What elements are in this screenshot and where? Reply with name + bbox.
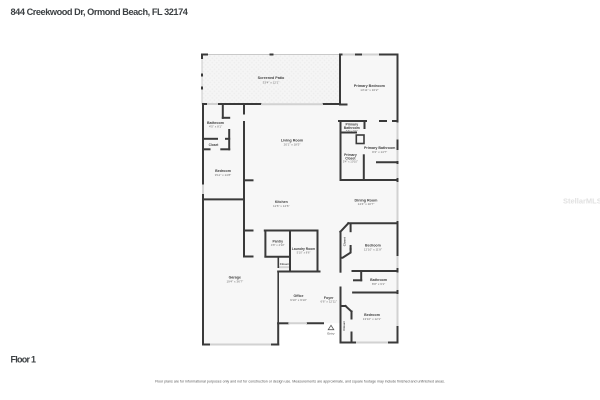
svg-text:Entry: Entry xyxy=(327,331,335,335)
svg-text:13'10" x 12'1": 13'10" x 12'1" xyxy=(363,317,381,321)
svg-text:4'8" x 4'10": 4'8" x 4'10" xyxy=(271,243,285,247)
svg-text:Floor plans are for informatio: Floor plans are for informational purpos… xyxy=(155,380,445,384)
svg-text:Closet: Closet xyxy=(280,262,289,266)
svg-text:Floor 1: Floor 1 xyxy=(11,355,36,365)
svg-text:14'4" x 10'7": 14'4" x 10'7" xyxy=(358,202,375,206)
svg-text:Closet: Closet xyxy=(342,321,346,330)
svg-text:8'2" x 14'7": 8'2" x 14'7" xyxy=(372,150,387,154)
svg-text:11'6" x 12'6": 11'6" x 12'6" xyxy=(273,204,289,208)
svg-text:6'6" x 12'11": 6'6" x 12'11" xyxy=(320,300,336,304)
svg-text:Closet: Closet xyxy=(209,143,220,147)
svg-text:33'4" x 12'1": 33'4" x 12'1" xyxy=(263,80,280,84)
svg-text:5'4" x 10'10": 5'4" x 10'10" xyxy=(343,160,358,164)
svg-text:9'11" x 14'8": 9'11" x 14'8" xyxy=(215,173,231,177)
svg-text:StellarMLS: StellarMLS xyxy=(563,197,600,206)
svg-text:19'4" x 36'7": 19'4" x 36'7" xyxy=(226,280,243,284)
svg-text:8'8" x 6'1": 8'8" x 6'1" xyxy=(372,282,385,286)
svg-text:5'8" x 5'6": 5'8" x 5'6" xyxy=(346,129,358,133)
svg-text:9'10" x 9'10": 9'10" x 9'10" xyxy=(290,298,307,302)
svg-text:5'10" x 8'6": 5'10" x 8'6" xyxy=(297,251,311,255)
svg-text:844 Creekwood Dr, Ormond Beach: 844 Creekwood Dr, Ormond Beach, FL 32174 xyxy=(11,7,189,17)
svg-text:Closet: Closet xyxy=(342,237,346,246)
svg-text:20'1" x 18'5": 20'1" x 18'5" xyxy=(284,142,301,146)
svg-text:12'10" x 11'8": 12'10" x 11'8" xyxy=(364,247,382,251)
svg-text:13'11" x 16'2": 13'11" x 16'2" xyxy=(360,88,378,92)
svg-text:4'5" x 8'1": 4'5" x 8'1" xyxy=(209,125,222,129)
